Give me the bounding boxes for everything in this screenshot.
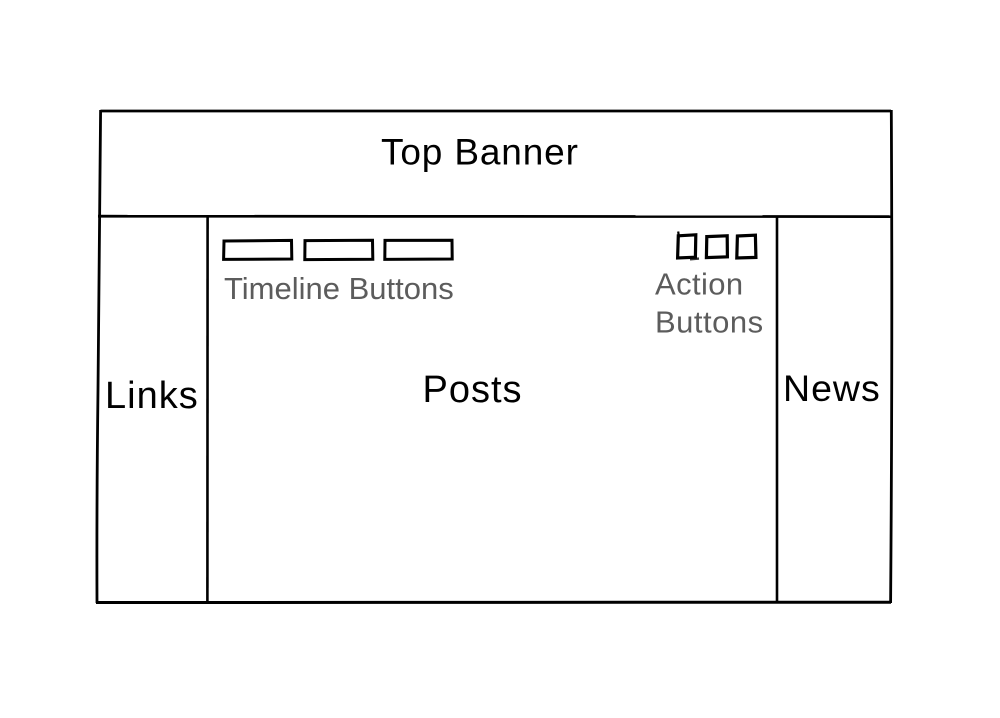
svg-text:Action: Action [655,267,744,302]
svg-text:Timeline Buttons: Timeline Buttons [224,271,454,306]
svg-text:News: News [783,367,881,409]
svg-text:Links: Links [105,375,199,417]
svg-text:Posts: Posts [423,369,523,411]
svg-text:Top Banner: Top Banner [381,132,579,173]
svg-text:Buttons: Buttons [655,305,764,340]
